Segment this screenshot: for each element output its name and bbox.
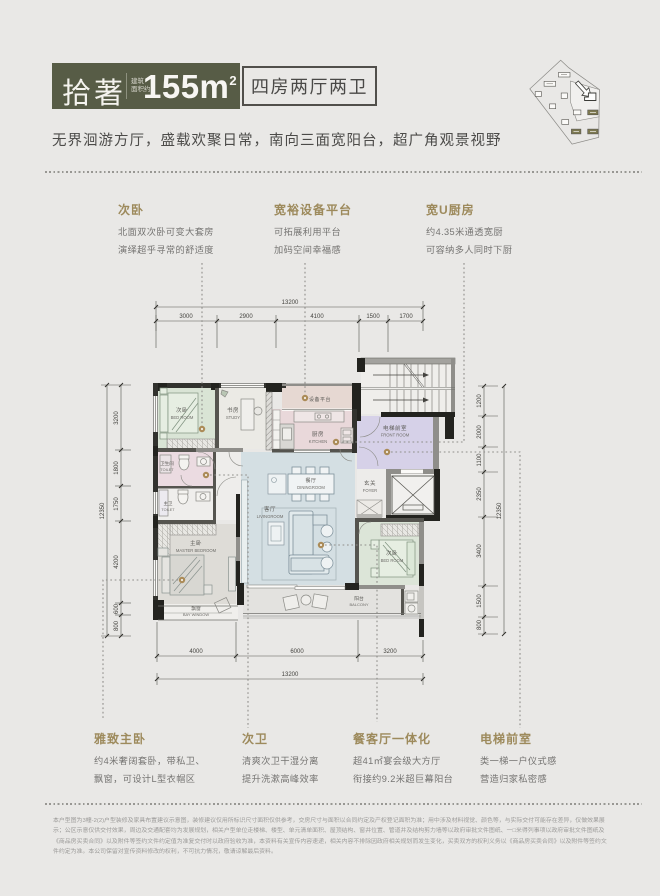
svg-text:1500: 1500 bbox=[477, 594, 483, 608]
svg-text:4000: 4000 bbox=[189, 649, 203, 655]
svg-text:书房: 书房 bbox=[227, 406, 239, 414]
svg-text:2000: 2000 bbox=[477, 425, 483, 439]
svg-text:4200: 4200 bbox=[114, 555, 120, 569]
svg-text:设备平台: 设备平台 bbox=[309, 396, 331, 403]
svg-text:1800: 1800 bbox=[114, 461, 120, 475]
svg-text:主卧: 主卧 bbox=[190, 539, 202, 547]
svg-text:FRONT ROOM: FRONT ROOM bbox=[381, 433, 410, 438]
svg-text:DININGROOM: DININGROOM bbox=[297, 485, 325, 490]
svg-text:800: 800 bbox=[114, 620, 120, 631]
svg-text:阳台: 阳台 bbox=[354, 595, 364, 602]
svg-text:3000: 3000 bbox=[179, 314, 193, 320]
svg-text:TOILET: TOILET bbox=[161, 508, 175, 512]
svg-text:FOYER: FOYER bbox=[363, 488, 377, 493]
svg-text:600: 600 bbox=[114, 603, 120, 614]
svg-text:1100: 1100 bbox=[477, 453, 483, 467]
svg-text:STUDY: STUDY bbox=[226, 415, 240, 420]
svg-text:MASTER BEDROOM: MASTER BEDROOM bbox=[176, 548, 217, 553]
svg-text:1500: 1500 bbox=[366, 314, 380, 320]
svg-text:3400: 3400 bbox=[477, 544, 483, 558]
svg-text:4100: 4100 bbox=[310, 314, 324, 320]
svg-text:2350: 2350 bbox=[477, 487, 483, 501]
svg-text:13200: 13200 bbox=[282, 672, 299, 678]
svg-text:BALCONY: BALCONY bbox=[349, 602, 368, 607]
svg-text:餐厅: 餐厅 bbox=[305, 477, 316, 484]
svg-text:1200: 1200 bbox=[477, 394, 483, 408]
svg-text:次卧: 次卧 bbox=[386, 549, 398, 557]
svg-text:BAY WINDOW: BAY WINDOW bbox=[183, 612, 210, 617]
svg-text:13200: 13200 bbox=[282, 300, 299, 306]
svg-text:玄关: 玄关 bbox=[364, 479, 376, 487]
svg-text:卫生间: 卫生间 bbox=[160, 460, 174, 467]
svg-text:3200: 3200 bbox=[383, 649, 397, 655]
svg-text:厨房: 厨房 bbox=[312, 430, 324, 438]
svg-text:1700: 1700 bbox=[399, 314, 413, 320]
svg-text:800: 800 bbox=[477, 619, 483, 630]
svg-text:BED ROOM: BED ROOM bbox=[381, 558, 404, 563]
svg-text:BED ROOM: BED ROOM bbox=[171, 415, 194, 420]
svg-text:LIVINGROOM: LIVINGROOM bbox=[257, 514, 284, 519]
svg-text:TOILET: TOILET bbox=[160, 468, 174, 472]
svg-text:主卫: 主卫 bbox=[164, 500, 173, 506]
svg-text:客厅: 客厅 bbox=[264, 505, 276, 513]
svg-text:12350: 12350 bbox=[497, 502, 503, 519]
svg-text:1750: 1750 bbox=[114, 497, 120, 511]
svg-text:KITCHEN: KITCHEN bbox=[309, 439, 327, 444]
svg-text:6000: 6000 bbox=[290, 649, 304, 655]
svg-text:次卧: 次卧 bbox=[176, 406, 188, 414]
svg-text:2900: 2900 bbox=[239, 314, 253, 320]
svg-text:飘窗: 飘窗 bbox=[191, 605, 201, 612]
svg-text:电梯前室: 电梯前室 bbox=[383, 424, 407, 432]
svg-text:3200: 3200 bbox=[114, 411, 120, 425]
svg-text:12350: 12350 bbox=[100, 502, 106, 519]
